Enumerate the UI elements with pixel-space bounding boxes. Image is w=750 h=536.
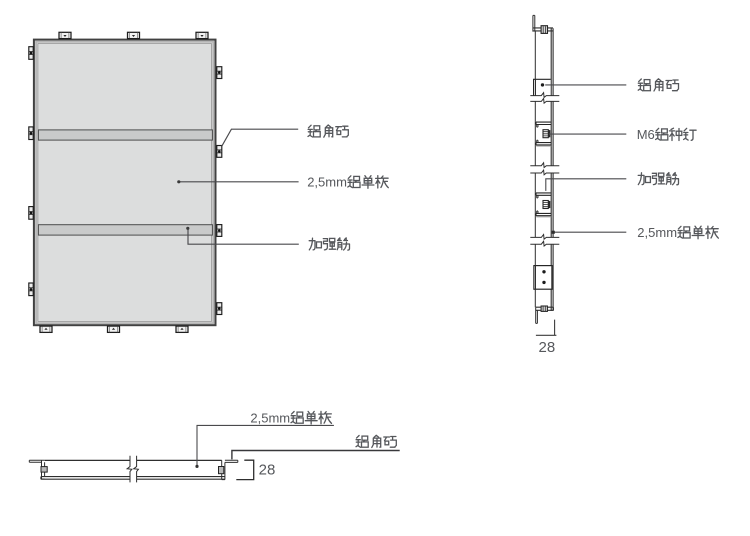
svg-text:M6: M6 xyxy=(637,127,655,142)
svg-text:2,5mm: 2,5mm xyxy=(637,225,677,240)
svg-text:28: 28 xyxy=(259,462,276,479)
svg-text:28: 28 xyxy=(539,339,556,356)
svg-text:2,5mm: 2,5mm xyxy=(307,175,347,190)
svg-text:2,5mm: 2,5mm xyxy=(250,410,290,425)
